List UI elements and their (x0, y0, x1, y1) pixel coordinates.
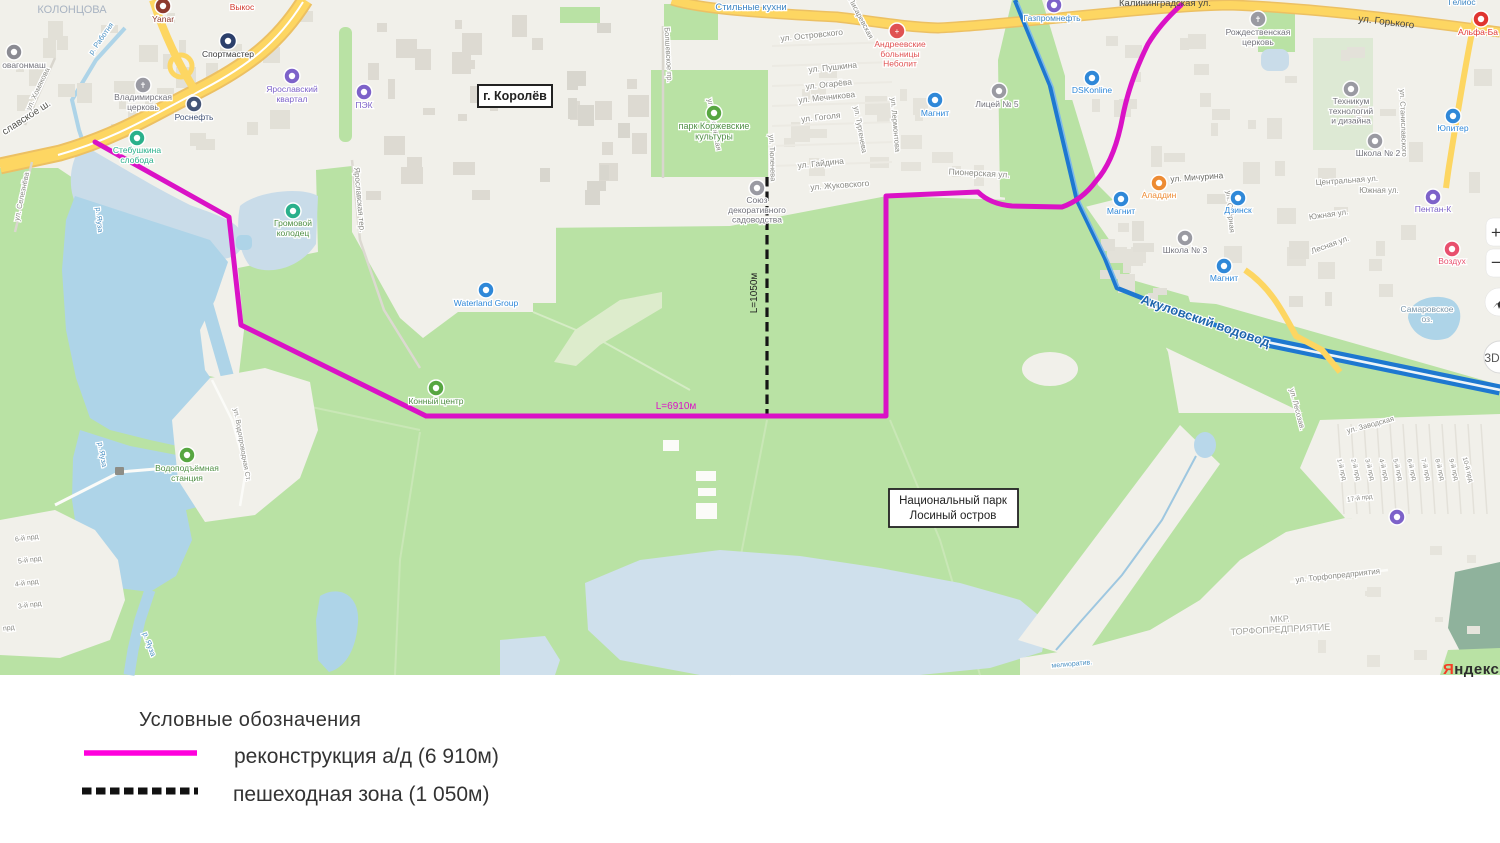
svg-text:Калининградская ул.: Калининградская ул. (1119, 0, 1211, 9)
svg-text:Школа № 2: Школа № 2 (1356, 148, 1401, 158)
svg-text:✝: ✝ (140, 81, 147, 90)
svg-text:Yanar: Yanar (152, 14, 174, 24)
svg-text:Условные обозначения: Условные обозначения (139, 709, 361, 731)
svg-text:L=1050м: L=1050м (749, 273, 760, 314)
svg-text:Спортмастер: Спортмастер (202, 49, 254, 59)
svg-text:Дзинск: Дзинск (1224, 205, 1252, 215)
svg-text:Громовойколодец: Громовойколодец (274, 218, 312, 238)
svg-text:г. Королёв: г. Королёв (483, 89, 547, 103)
svg-text:Гелиос: Гелиос (1448, 0, 1476, 7)
svg-text:Магнит: Магнит (921, 108, 949, 118)
svg-text:L=6910м: L=6910м (656, 401, 697, 412)
svg-text:Юпитер: Юпитер (1437, 123, 1468, 133)
svg-text:Южная ул.: Южная ул. (1359, 186, 1399, 195)
svg-text:ул. Тюленева: ул. Тюленева (767, 134, 778, 182)
svg-text:Яндекс: Яндекс (1443, 661, 1499, 678)
svg-text:+: + (895, 27, 900, 36)
svg-text:Пентан-К: Пентан-К (1415, 204, 1452, 214)
svg-text:Национальный парк: Национальный парк (899, 495, 1008, 507)
svg-text:✝: ✝ (1255, 15, 1262, 24)
svg-text:Выкос: Выкос (230, 2, 255, 12)
svg-text:КОЛОНЦОВА: КОЛОНЦОВА (37, 4, 107, 16)
svg-text:3D: 3D (1484, 351, 1500, 365)
svg-text:DSKonline: DSKonline (1072, 85, 1112, 95)
svg-text:ПЭК: ПЭК (355, 100, 372, 110)
svg-text:Конный центр: Конный центр (408, 396, 463, 406)
svg-text:+: + (1491, 223, 1500, 242)
svg-text:Лицей № 5: Лицей № 5 (975, 99, 1018, 109)
svg-text:Стильные кухни: Стильные кухни (715, 2, 786, 13)
svg-text:Магнит: Магнит (1107, 206, 1135, 216)
svg-text:−: − (1491, 253, 1500, 272)
svg-text:Альфа-Ба: Альфа-Ба (1458, 27, 1498, 37)
svg-text:Магнит: Магнит (1210, 273, 1238, 283)
svg-text:реконструкция а/д (6 910м): реконструкция а/д (6 910м) (234, 745, 499, 768)
svg-text:Техникумтехнологийи дизайна: Техникумтехнологийи дизайна (1329, 96, 1373, 126)
svg-text:Школа № 3: Школа № 3 (1163, 245, 1208, 255)
svg-text:Газпромнефть: Газпромнефть (1023, 13, 1081, 23)
svg-text:Воздух: Воздух (1438, 256, 1466, 266)
svg-text:Аладдин: Аладдин (1142, 190, 1177, 200)
svg-text:пешеходная зона (1 050м): пешеходная зона (1 050м) (233, 783, 490, 806)
svg-text:Роснефть: Роснефть (175, 112, 214, 122)
svg-text:Waterland Group: Waterland Group (454, 298, 519, 308)
svg-text:овагонмаш: овагонмаш (2, 60, 46, 70)
svg-text:Лосиный остров: Лосиный остров (910, 510, 997, 522)
